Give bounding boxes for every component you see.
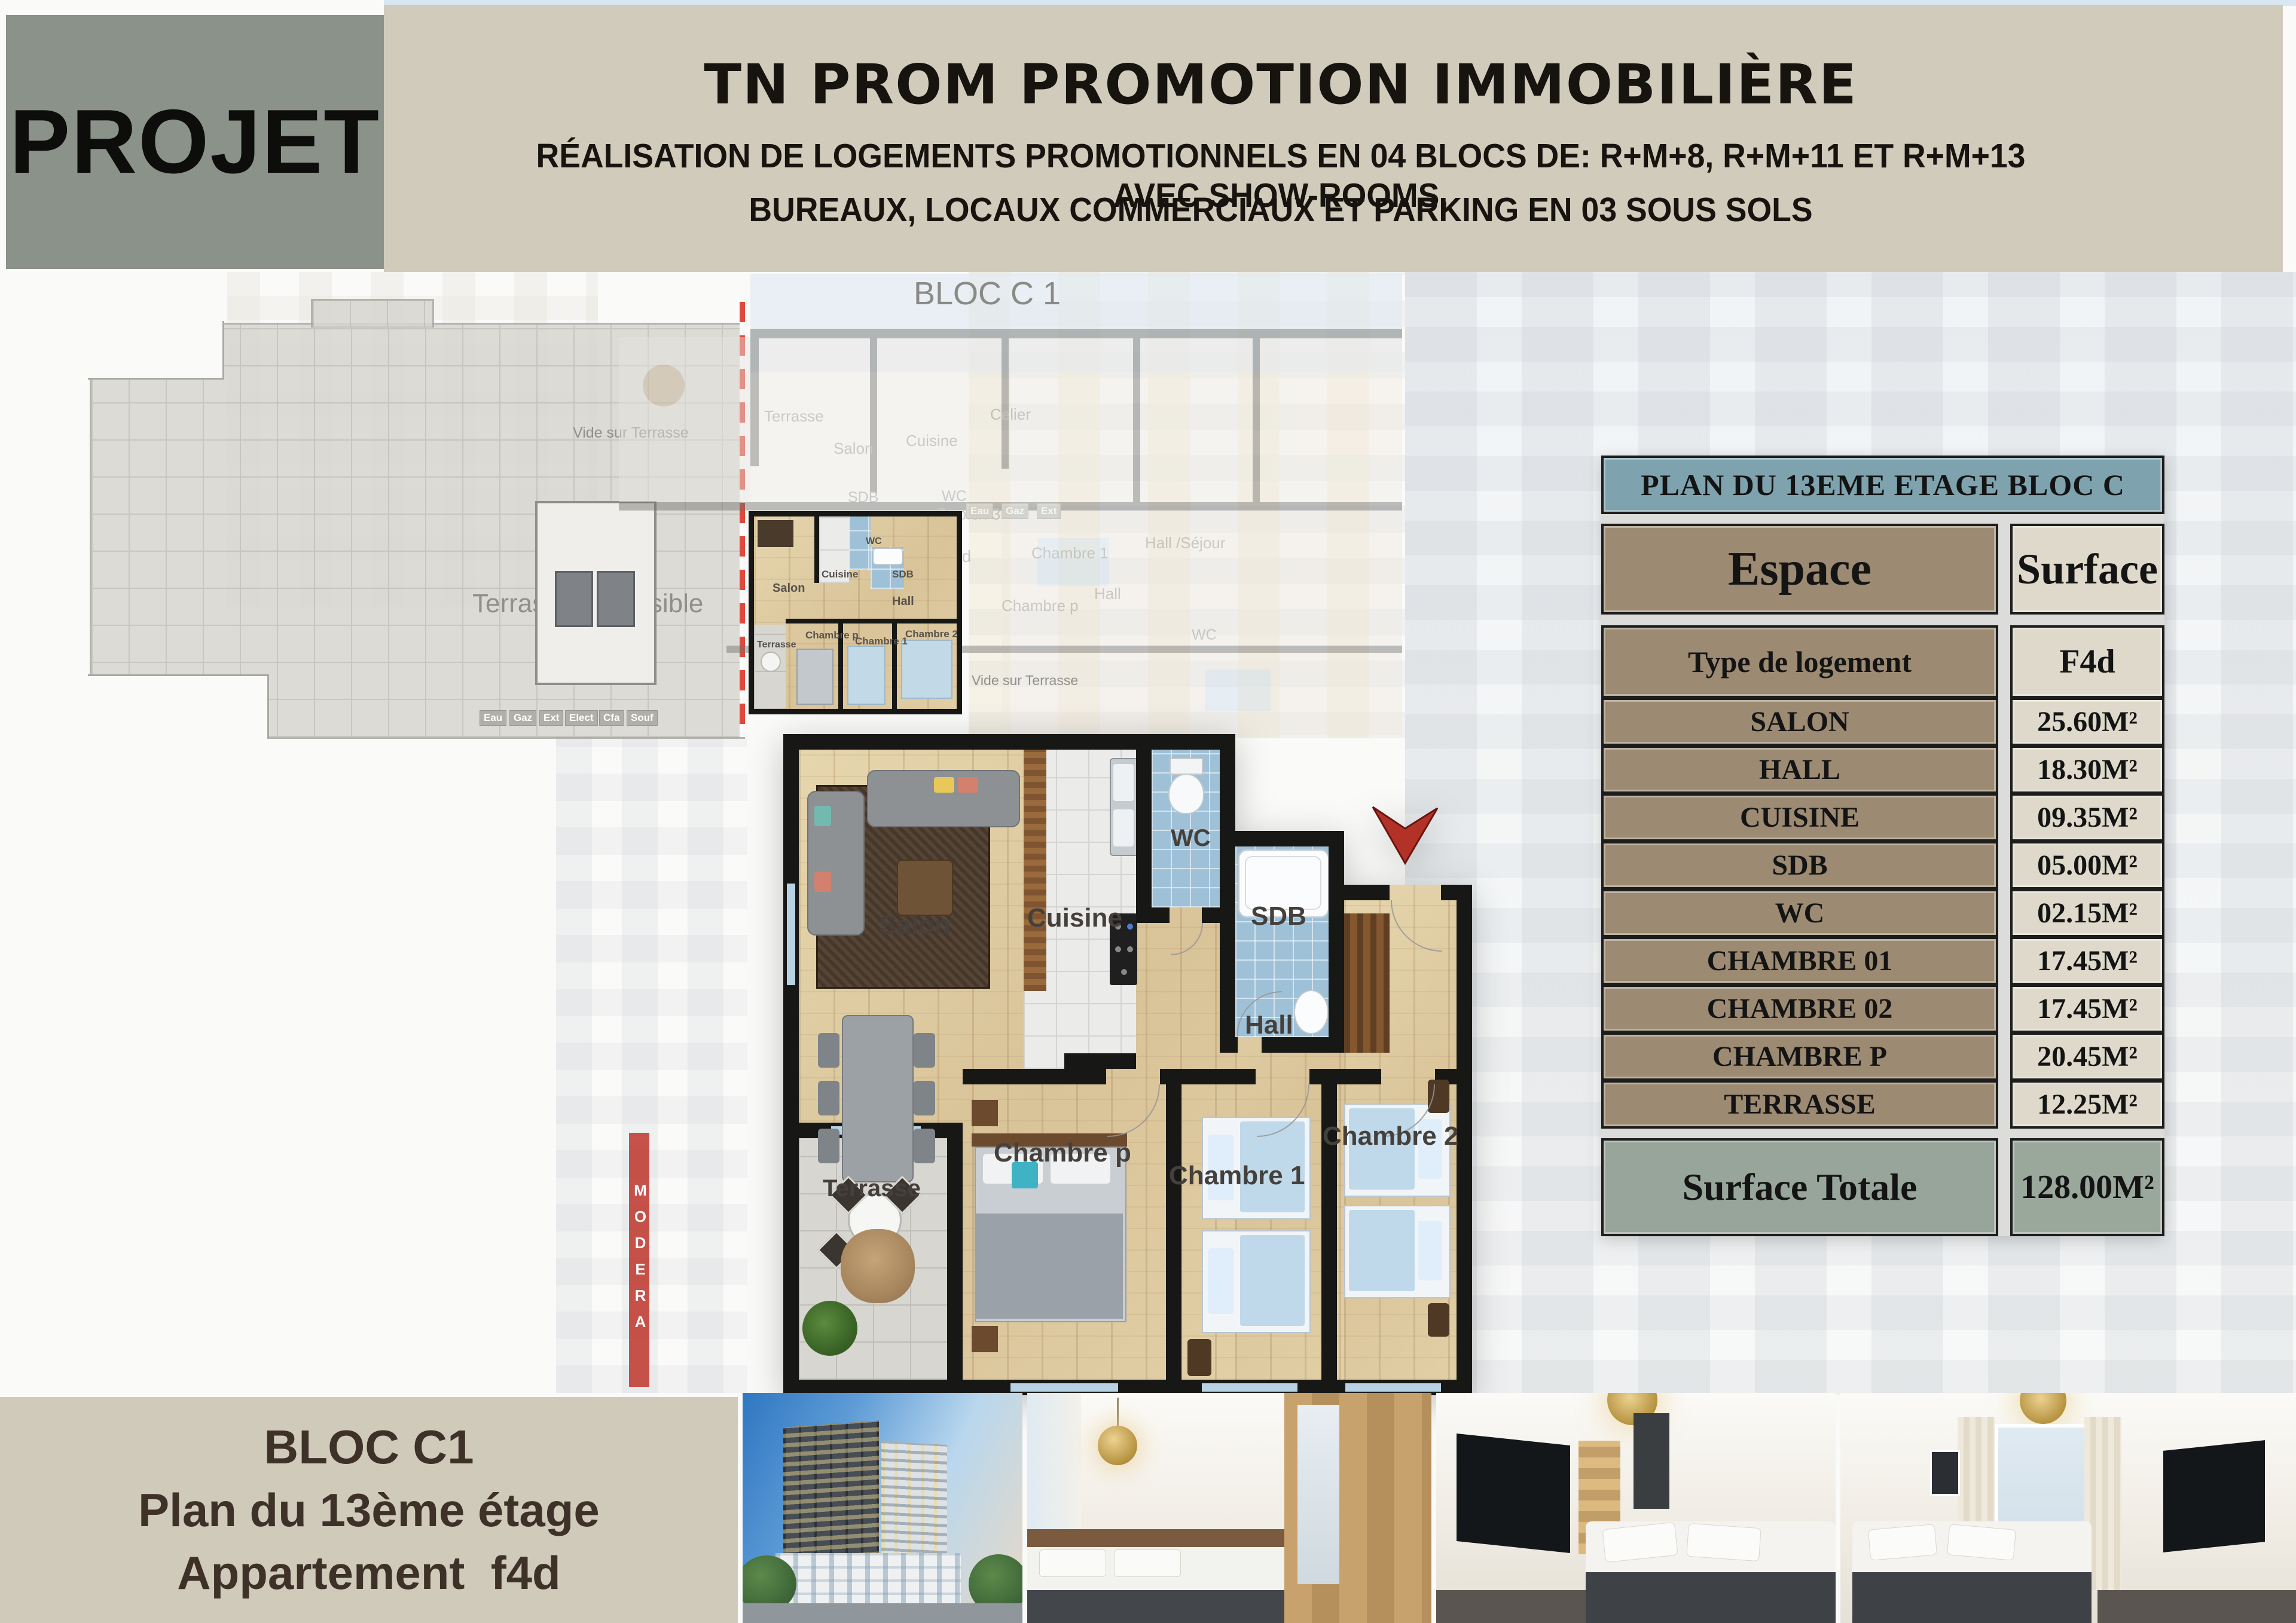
vide-terrasse-bottom-label: Vide sur Terrasse (972, 673, 1078, 689)
entrance-arrow-icon (1368, 801, 1442, 870)
background-tower-left-bottom (556, 735, 747, 1393)
table-row-label: HALL (1601, 745, 1998, 794)
terrasse-umbrella (841, 1229, 915, 1303)
table-row-value: 17.45M² (2010, 937, 2164, 985)
table-row-value: 09.35M² (2010, 793, 2164, 842)
table-row-label: Type de logement (1601, 625, 1998, 698)
lift-cell-1 (555, 571, 593, 627)
projet-label: PROJET (10, 90, 380, 194)
table-row-label: CHAMBRE 01 (1601, 937, 1998, 985)
terrace-notch-bottom (88, 674, 269, 739)
core-badge-eau: Eau (480, 710, 506, 726)
mini-plan: Salon Cuisine WC SDB Hall Chambre p Cham… (749, 511, 962, 714)
table-row-label: CHAMBRE P (1601, 1032, 1998, 1081)
table-row-label: CUISINE (1601, 793, 1998, 842)
room-label-chambre-p: Chambre p (994, 1138, 1131, 1168)
surface-table: PLAN DU 13EME ETAGE BLOC C Espace Surfac… (1601, 456, 2164, 1236)
dining-table (842, 1015, 914, 1182)
room-label-chambre-1: Chambre 1 (1169, 1161, 1305, 1191)
room-label-chambre-2: Chambre 2 (1323, 1121, 1458, 1151)
table-total-label: Surface Totale (1601, 1138, 1998, 1236)
core-badge-ext: Ext (539, 710, 563, 726)
terrace-notch-top (88, 321, 224, 380)
table-row-value: 20.45M² (2010, 1032, 2164, 1081)
table-col-surface: Surface (2010, 524, 2164, 615)
table-row-value: 12.25M² (2010, 1080, 2164, 1129)
company-title: TN PROM PROMOTION IMMOBILIÈRE (444, 53, 2118, 117)
table-row-label: SDB (1601, 841, 1998, 890)
bed-1b (1202, 1230, 1311, 1333)
table-row-label: WC (1601, 889, 1998, 937)
terrasse-plant (802, 1301, 857, 1356)
footer-bloc: BLOC C1 (264, 1420, 474, 1475)
room-label-cuisine: Cuisine (1027, 903, 1122, 933)
photo-bedroom-tv (1436, 1393, 1836, 1623)
table-row-value: 17.45M² (2010, 985, 2164, 1033)
room-label-salon: Salon (879, 910, 951, 940)
photo-bedroom-window (1840, 1393, 2296, 1623)
window-chambre-1 (1202, 1383, 1297, 1392)
window-chambre-2 (1345, 1383, 1441, 1392)
sdb-sink (1294, 990, 1329, 1034)
room-label-wc: WC (1171, 825, 1211, 852)
room-label-terrasse: Terrasse (823, 1175, 921, 1202)
entry-wardrobe (1344, 913, 1390, 1053)
table-row-value: 25.60M² (2010, 698, 2164, 746)
terrace-bump-top (311, 299, 434, 328)
table-row-label: TERRASSE (1601, 1080, 1998, 1129)
poster: MODERA PROJET TN PROM PROMOTION IMMOBILI… (0, 0, 2296, 1623)
photo-building-exterior (743, 1393, 1022, 1623)
table-row-value: F4d (2010, 625, 2164, 698)
table-row-label: SALON (1601, 698, 1998, 746)
bed-p (975, 1147, 1126, 1322)
table-row-value: 02.15M² (2010, 889, 2164, 937)
table-row-value: 18.30M² (2010, 745, 2164, 794)
bloc-c1-plan-label: BLOC C 1 (914, 275, 1061, 312)
projet-box: PROJET (6, 15, 384, 269)
window-salon (787, 884, 795, 985)
modera-sign: MODERA (629, 1133, 649, 1387)
core-badge-gaz: Gaz (509, 710, 536, 726)
bed-2b (1344, 1205, 1451, 1298)
table-title: PLAN DU 13EME ETAGE BLOC C (1601, 456, 2164, 514)
footer-caption-box: BLOC C1 Plan du 13ème étage Appartement … (0, 1397, 738, 1623)
project-subtitle-line2: BUREAUX, LOCAUX COMMERCIAUX ET PARKING E… (494, 190, 2068, 230)
detail-plan: Salon Cuisine WC SDB Hall Chambre p Cham… (783, 734, 1472, 1395)
window-chambre-p (1010, 1383, 1118, 1392)
table-row-label: CHAMBRE 02 (1601, 985, 1998, 1033)
room-label-sdb: SDB (1251, 901, 1306, 931)
wc-toilet (1170, 758, 1203, 775)
core-badge-elect: Elect (565, 710, 598, 726)
footer-appartement: Appartement f4d (177, 1546, 560, 1600)
table-row-value: 05.00M² (2010, 841, 2164, 890)
room-label-hall: Hall (1245, 1010, 1293, 1040)
coffee-table (897, 860, 953, 916)
footer-etage: Plan du 13ème étage (138, 1483, 600, 1538)
table-total-value: 128.00M² (2010, 1138, 2164, 1236)
table-col-espace: Espace (1601, 524, 1998, 615)
photo-bedroom-wardrobe (1027, 1393, 1431, 1623)
